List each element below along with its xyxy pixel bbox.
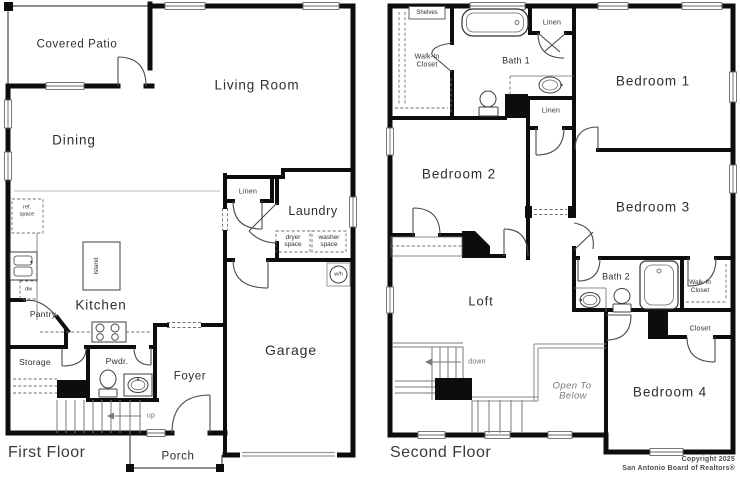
- label-bath2: Bath 2: [602, 273, 630, 282]
- label-walkin2-line2: Closet: [691, 288, 709, 295]
- label-closet: Closet: [689, 326, 710, 333]
- label-walkin1-line2: Closet: [416, 62, 437, 69]
- label-walkin2-line1: Walk-In: [689, 280, 711, 287]
- label-storage: Storage: [19, 358, 51, 367]
- label-water-heater: w/h: [334, 272, 343, 278]
- bath1-sink-icon: [510, 76, 574, 93]
- label-linen-top: Linen: [543, 20, 561, 27]
- label-bedroom1: Bedroom 1: [616, 74, 690, 88]
- bathtub1-icon: [462, 9, 528, 36]
- label-walkin1-line1: Walk-In: [415, 54, 440, 61]
- label-dryer-2: space: [284, 241, 301, 248]
- first-floor-stairs: [57, 400, 141, 433]
- copyright-notice: Copyright 2025 San Antonio Board of Real…: [622, 455, 735, 473]
- label-living-room: Living Room: [215, 78, 300, 92]
- label-loft: Loft: [468, 295, 493, 308]
- label-kitchen: Kitchen: [75, 298, 126, 312]
- label-laundry: Laundry: [288, 205, 337, 218]
- hall-opening-stub-right: [568, 206, 576, 218]
- label-bedroom2: Bedroom 2: [422, 167, 496, 181]
- loft-wall-wedge: [462, 231, 490, 258]
- first-floor-title: First Floor: [8, 444, 86, 462]
- label-powder-room: Pwdr.: [106, 357, 129, 366]
- label-ref-space-2: space: [20, 212, 35, 218]
- powder-sink-icon: [124, 374, 152, 396]
- label-bath1: Bath 1: [502, 57, 530, 66]
- label-pantry: Pantry: [30, 310, 56, 319]
- label-shelves: Shelves: [416, 10, 437, 16]
- patio-corner-post: [4, 2, 13, 11]
- kitchen-island: [83, 242, 120, 290]
- stair-landing-post: [435, 378, 472, 400]
- label-stairs-up: up: [147, 413, 155, 420]
- kitchen-sink-icon: [10, 252, 37, 280]
- bath1-wall-block: [505, 94, 528, 118]
- bathtub2-icon: [640, 261, 678, 309]
- label-linen-ff: Linen: [239, 189, 257, 196]
- floor-plan-page: Covered Patio Living Room Dining Kitchen…: [0, 0, 740, 480]
- label-foyer: Foyer: [174, 371, 206, 383]
- label-covered-patio: Covered Patio: [37, 39, 118, 51]
- down-arrow-icon: [425, 359, 432, 366]
- label-washer-2: space: [320, 241, 337, 248]
- label-dining: Dining: [52, 133, 96, 147]
- hall-opening-stub-left: [525, 206, 532, 218]
- second-floor-title: Second Floor: [390, 444, 491, 462]
- stair-landing-wall: [57, 380, 88, 398]
- stove-icon: [92, 322, 126, 342]
- label-linen-mid: Linen: [542, 108, 560, 115]
- label-porch: Porch: [161, 451, 194, 463]
- label-garage: Garage: [265, 343, 317, 357]
- label-island: Island: [94, 257, 101, 274]
- floor-plan-drawing: [0, 0, 740, 480]
- label-open-to-below-2: Below: [559, 391, 587, 401]
- label-bedroom4: Bedroom 4: [633, 385, 707, 399]
- garage-door: [240, 450, 337, 460]
- bath2-toilet-icon: [613, 289, 631, 313]
- second-floor-interior-walls: [390, 6, 733, 435]
- hall-closet-shelf: [391, 237, 462, 256]
- first-floor-plan: [4, 2, 357, 472]
- closet-wall-block: [648, 310, 668, 337]
- powder-toilet-icon: [99, 370, 117, 397]
- label-dishwasher: dw: [25, 287, 32, 293]
- copyright-line-2: San Antonio Board of Realtors®: [622, 464, 735, 473]
- label-bedroom3: Bedroom 3: [616, 200, 690, 214]
- copyright-line-1: Copyright 2025: [622, 455, 735, 464]
- label-stairs-down: down: [468, 359, 486, 366]
- bath1-toilet-icon: [479, 91, 498, 116]
